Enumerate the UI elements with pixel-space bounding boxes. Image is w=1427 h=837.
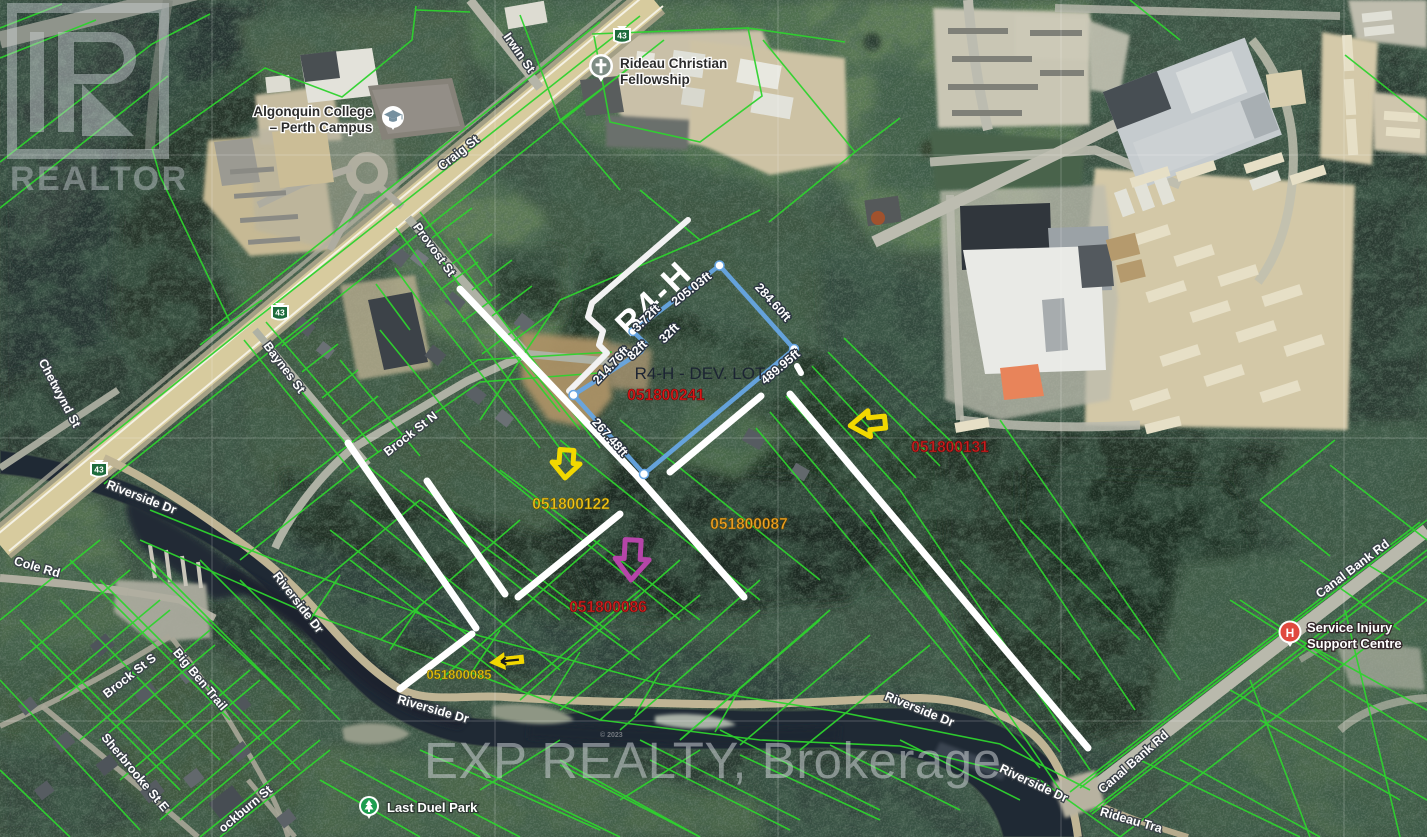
svg-text:051800241: 051800241 <box>627 387 705 404</box>
svg-text:Algonquin College: Algonquin College <box>253 104 373 119</box>
svg-text:Rideau Christian: Rideau Christian <box>620 56 727 71</box>
svg-text:051800085: 051800085 <box>426 667 491 682</box>
svg-text:051800122: 051800122 <box>532 496 610 513</box>
svg-text:051800087: 051800087 <box>710 516 788 533</box>
svg-text:051800131: 051800131 <box>911 439 989 456</box>
svg-text:R4-H - DEV. LOT: R4-H - DEV. LOT <box>635 364 766 383</box>
svg-text:43: 43 <box>275 308 285 318</box>
svg-text:REALTOR: REALTOR <box>10 160 189 198</box>
svg-text:43: 43 <box>617 31 627 41</box>
svg-text:EXP REALTY, Brokerage: EXP REALTY, Brokerage <box>424 732 1001 789</box>
svg-text:Support Centre: Support Centre <box>1307 636 1402 651</box>
svg-text:43: 43 <box>94 465 104 475</box>
svg-text:051800086: 051800086 <box>569 599 647 616</box>
svg-text:Last Duel Park: Last Duel Park <box>387 800 478 815</box>
svg-text:– Perth Campus: – Perth Campus <box>270 120 373 135</box>
svg-text:Fellowship: Fellowship <box>620 72 690 87</box>
svg-text:Service Injury: Service Injury <box>1307 620 1393 635</box>
svg-text:H: H <box>1286 626 1295 640</box>
